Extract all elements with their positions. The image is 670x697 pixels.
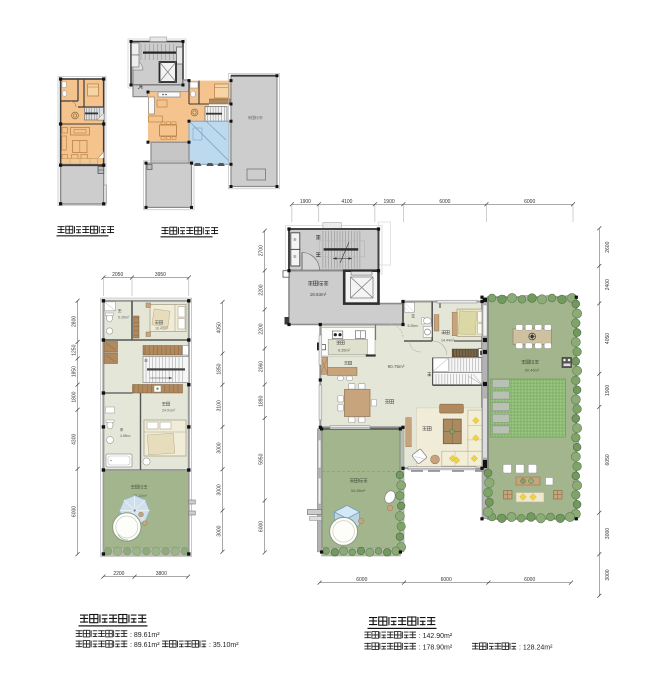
svg-text:4300: 4300 bbox=[72, 434, 78, 445]
svg-text:3800: 3800 bbox=[156, 571, 167, 577]
svg-text:18.63m²: 18.63m² bbox=[310, 292, 327, 297]
svg-text:3000: 3000 bbox=[605, 528, 611, 539]
svg-text:: 178.90m²: : 178.90m² bbox=[419, 644, 453, 651]
svg-text:: 89.61m²: : 89.61m² bbox=[130, 632, 160, 639]
svg-text:2200: 2200 bbox=[259, 284, 265, 295]
svg-text:1250: 1250 bbox=[72, 344, 78, 355]
svg-text:6000: 6000 bbox=[356, 577, 367, 583]
svg-text:3950: 3950 bbox=[155, 272, 166, 278]
svg-text:5950: 5950 bbox=[259, 453, 265, 464]
svg-text:1850: 1850 bbox=[72, 366, 78, 377]
svg-text:2700: 2700 bbox=[259, 245, 265, 256]
svg-text:4050: 4050 bbox=[605, 333, 611, 344]
svg-text:1850: 1850 bbox=[217, 363, 223, 374]
svg-text:3000: 3000 bbox=[217, 442, 223, 453]
svg-text:6050: 6050 bbox=[605, 454, 611, 465]
svg-text:16.43m²: 16.43m² bbox=[155, 327, 169, 331]
svg-text:3000: 3000 bbox=[217, 525, 223, 536]
svg-text:2200: 2200 bbox=[259, 323, 265, 334]
svg-text:: 142.90m²: : 142.90m² bbox=[419, 633, 453, 640]
svg-text:2600: 2600 bbox=[605, 241, 611, 252]
svg-text:: 89.61m²: : 89.61m² bbox=[130, 642, 160, 649]
svg-text:1800: 1800 bbox=[72, 391, 78, 402]
svg-text:2200: 2200 bbox=[113, 571, 124, 577]
svg-text:6000: 6000 bbox=[259, 521, 265, 532]
svg-text:1900: 1900 bbox=[384, 199, 395, 205]
svg-text:4.88m²: 4.88m² bbox=[120, 434, 131, 438]
svg-text:: 35.10m²: : 35.10m² bbox=[209, 642, 239, 649]
svg-text:2060: 2060 bbox=[259, 361, 265, 372]
svg-text:5.26m²: 5.26m² bbox=[118, 316, 130, 320]
svg-text:5.26m²: 5.26m² bbox=[408, 324, 419, 328]
svg-text:3100: 3100 bbox=[217, 400, 223, 411]
svg-text:4100: 4100 bbox=[341, 199, 352, 205]
svg-text:1900: 1900 bbox=[605, 385, 611, 396]
svg-text:3000: 3000 bbox=[605, 569, 611, 580]
svg-text:3000: 3000 bbox=[217, 484, 223, 495]
svg-text:1900: 1900 bbox=[300, 199, 311, 205]
svg-text:6000: 6000 bbox=[439, 199, 450, 205]
svg-text:90.46m²: 90.46m² bbox=[525, 368, 540, 373]
svg-text:6000: 6000 bbox=[72, 506, 78, 517]
svg-text:90.75m²: 90.75m² bbox=[388, 364, 405, 369]
svg-text:6000: 6000 bbox=[524, 577, 535, 583]
svg-text:34.96m²: 34.96m² bbox=[351, 488, 366, 493]
svg-text:: 128.24m²: : 128.24m² bbox=[519, 644, 553, 651]
svg-text:6000: 6000 bbox=[524, 199, 535, 205]
svg-text:24.91m²: 24.91m² bbox=[162, 409, 176, 413]
svg-text:2400: 2400 bbox=[605, 279, 611, 290]
svg-text:1890: 1890 bbox=[259, 395, 265, 406]
svg-text:2800: 2800 bbox=[72, 316, 78, 327]
svg-text:2050: 2050 bbox=[112, 272, 123, 278]
svg-text:4050: 4050 bbox=[217, 322, 223, 333]
svg-text:6.35m²: 6.35m² bbox=[338, 349, 351, 353]
svg-text:14.44m²: 14.44m² bbox=[441, 339, 455, 343]
svg-text:6000: 6000 bbox=[441, 577, 452, 583]
